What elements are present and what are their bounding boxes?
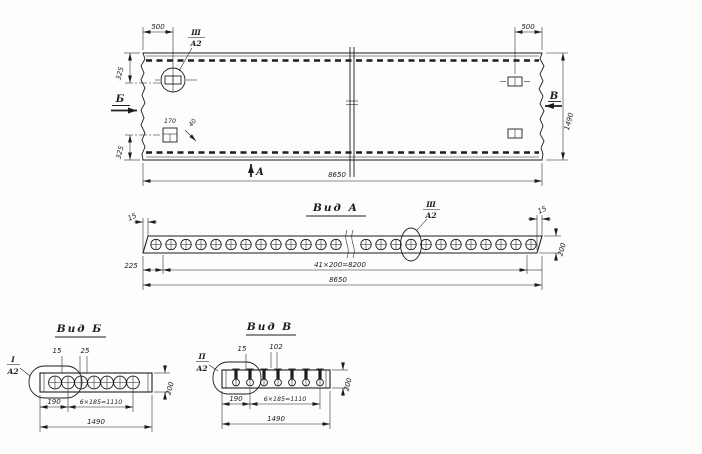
detail-callout-view-a: Ш А2 (417, 200, 440, 230)
svg-text:325: 325 (114, 65, 125, 81)
view-a: Вид А Ш А2 (124, 200, 567, 290)
lifting-loop (155, 68, 197, 92)
section-v-label: В (549, 91, 558, 102)
detail-callout-plan: Ш А2 (179, 28, 205, 71)
section-arrow-b: Б (111, 94, 137, 111)
svg-text:15: 15 (126, 211, 138, 222)
svg-text:102: 102 (269, 343, 283, 351)
dim-25-view-b: 25 (80, 347, 90, 373)
channel-detail: 170 40 (163, 118, 198, 142)
dim-8650-plan: 8650 (143, 163, 542, 186)
svg-text:1490: 1490 (563, 111, 575, 131)
blueprint-canvas: 170 40 Ш А2 500 500 325 (0, 0, 702, 454)
callout-num: Ш (425, 200, 436, 209)
plan-view: 170 40 Ш А2 500 500 325 (111, 23, 575, 186)
svg-text:200: 200 (164, 380, 175, 396)
embed-plate-top-right (500, 77, 530, 86)
svg-text:200: 200 (342, 376, 353, 392)
dim-500-top-right: 500 (515, 23, 542, 74)
dim-15-view-b: 15 (53, 347, 62, 373)
svg-text:15: 15 (238, 345, 247, 353)
svg-text:325: 325 (114, 144, 125, 160)
dim-40: 40 (188, 118, 199, 129)
callout-den: А2 (195, 364, 207, 373)
left-rough-edge (141, 53, 145, 160)
panel-drawing: 170 40 Ш А2 500 500 325 (0, 0, 702, 454)
dim-8650-view-a: 8650 (329, 276, 347, 284)
view-b: Вид Б I А2 15 25 (6, 323, 175, 432)
view-a-holes (151, 239, 536, 249)
callout-den: А2 (424, 211, 436, 220)
section-arrow-v: В (545, 91, 562, 106)
callout-num: П (197, 352, 206, 361)
dim-225: 225 (124, 262, 138, 270)
view-a-title: Вид А (312, 202, 359, 214)
dim-325-upper: 325 (114, 53, 162, 83)
section-a-label: А (255, 167, 264, 178)
view-v-loops (232, 369, 323, 386)
dim-200-view-a: 200 (539, 228, 568, 261)
dim-1490: 1490 (267, 415, 285, 423)
dim-1490: 1490 (87, 418, 105, 426)
right-rough-edge (539, 53, 544, 160)
dim-41x200: 41×200=8200 (314, 261, 366, 269)
dim-200-view-v: 200 (332, 362, 354, 396)
dim-500-top-left: 500 (143, 23, 173, 92)
callout-den: А2 (6, 367, 18, 376)
view-v: Вид В П А2 15 102 (195, 321, 353, 429)
dim-15-view-v: 15 (238, 345, 247, 370)
callout-den: А2 (189, 39, 201, 48)
dim-190: 190 (229, 395, 243, 403)
view-b-holes (49, 376, 140, 389)
dim-170: 170 (164, 118, 176, 125)
dim-row-view-a: 225 41×200=8200 8650 (124, 255, 542, 290)
svg-text:8650: 8650 (328, 171, 346, 179)
view-b-title: Вид Б (56, 323, 103, 335)
svg-text:25: 25 (81, 347, 90, 355)
dim-200-view-b: 200 (154, 365, 176, 400)
svg-text:500: 500 (151, 23, 165, 31)
callout-num: I (10, 355, 15, 364)
panel-joint (346, 47, 358, 177)
embed-plate-bottom-right (508, 129, 522, 138)
svg-text:200: 200 (556, 241, 567, 257)
dim-15-left: 15 (126, 211, 157, 250)
dim-6x185: 6×185=1110 (264, 396, 307, 403)
dim-102-view-v: 102 (269, 343, 283, 368)
svg-text:500: 500 (521, 23, 535, 31)
section-arrow-a: А (251, 164, 264, 178)
dim-rows-view-b: 190 6×185=1110 1490 (40, 390, 152, 432)
dim-325-lower: 325 (114, 135, 160, 160)
dim-rows-view-v: 190 6×185=1110 1490 (222, 388, 330, 429)
dim-6x185: 6×185=1110 (80, 399, 123, 406)
callout-num: Ш (190, 28, 201, 37)
section-b-label: Б (115, 94, 125, 105)
panel-outline (141, 53, 544, 160)
svg-text:15: 15 (53, 347, 62, 355)
svg-text:15: 15 (536, 204, 548, 215)
detail-callout-view-b: I А2 (6, 355, 30, 376)
dim-190: 190 (47, 398, 61, 406)
view-v-title: Вид В (246, 321, 293, 333)
view-a-break-lines (346, 230, 355, 258)
